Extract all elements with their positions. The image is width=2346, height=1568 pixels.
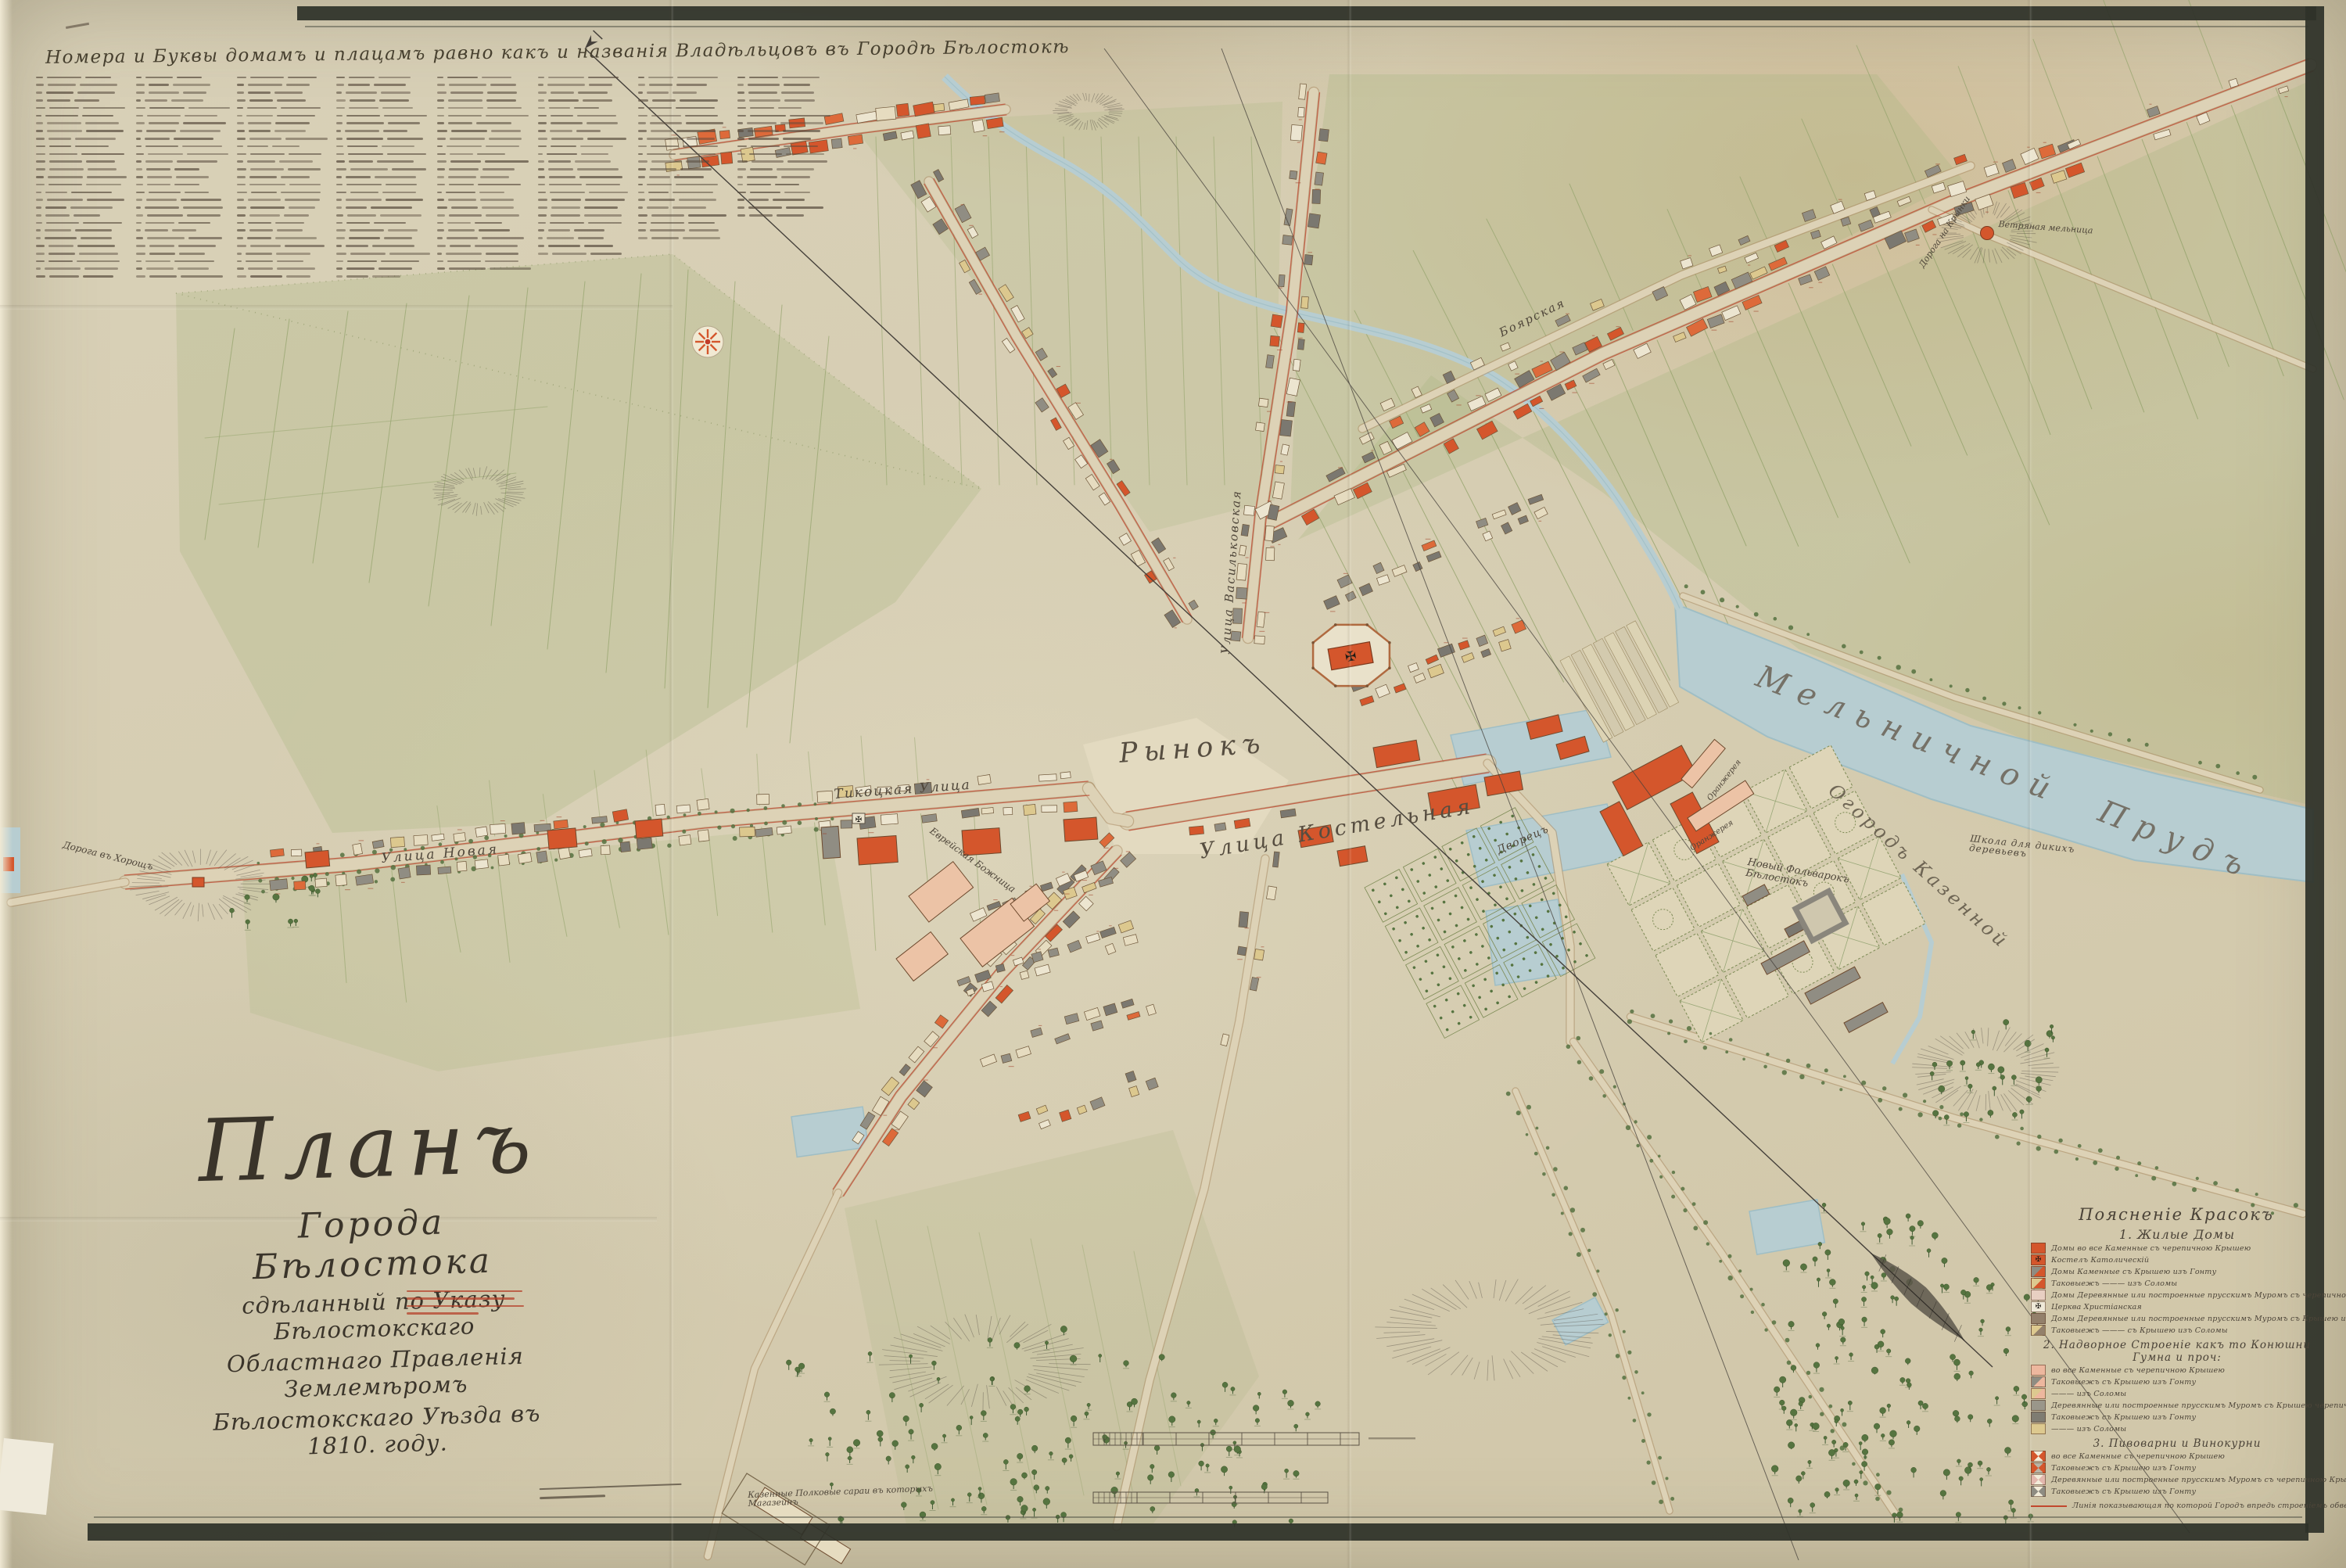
building-footprint (1189, 826, 1204, 835)
building-footprint (848, 135, 863, 145)
owner-row (437, 173, 531, 181)
building-footprint (655, 804, 665, 815)
owner-row (237, 242, 330, 250)
legend-item-label: Домы Деревянные или построенные прусским… (2051, 1291, 2346, 1300)
legend-swatch-icon (2031, 1266, 2046, 1277)
legend-swatch-icon (2031, 1290, 2046, 1301)
owner-row (136, 120, 230, 127)
owner-row (538, 227, 631, 235)
building-footprint (1508, 503, 1521, 515)
building-footprint (1060, 1110, 1071, 1121)
building-footprint (1064, 437, 1074, 449)
building-footprint (961, 808, 979, 818)
building-footprint (1086, 933, 1100, 943)
owner-row (136, 188, 230, 196)
building-footprint (857, 836, 898, 865)
owner-row (737, 104, 830, 112)
building-footprint (1799, 274, 1813, 285)
building-footprint (1281, 444, 1290, 455)
owner-row (136, 257, 230, 265)
fold-crease (0, 305, 673, 310)
building-footprint (1146, 1078, 1158, 1090)
legend-footer-label: Линія показывающая по которой Городъ впр… (2072, 1502, 2346, 1510)
building-footprint (1360, 696, 1374, 706)
owner-row (336, 150, 430, 158)
building-footprint (1499, 640, 1512, 651)
owner-row (538, 135, 631, 142)
owner-row (136, 181, 230, 188)
owner-row (237, 135, 330, 142)
building-footprint (1428, 664, 1444, 677)
building-footprint (921, 814, 937, 823)
owner-row (36, 135, 129, 142)
building-footprint (1118, 920, 1133, 933)
owner-row (136, 96, 230, 104)
owner-row (437, 112, 531, 120)
building-footprint (1221, 1034, 1229, 1046)
building-footprint (635, 819, 663, 838)
building-footprint (490, 823, 506, 834)
building-footprint (1099, 877, 1114, 887)
owner-row (437, 235, 531, 242)
building-footprint (558, 847, 570, 859)
building-footprint (1272, 852, 1279, 867)
owner-row (237, 188, 330, 196)
owner-row (336, 166, 430, 174)
building-footprint (985, 93, 999, 103)
building-footprint (1003, 807, 1013, 815)
building-footprint (1035, 964, 1050, 976)
title-line: Планъ (169, 1091, 570, 1202)
legend-item: Домы Каменные съ Крышею изъ Гонту (2031, 1266, 2322, 1277)
building-footprint (1301, 296, 1309, 308)
red-line-sample (2031, 1505, 2067, 1507)
owner-row (538, 127, 631, 135)
owner-row (737, 135, 830, 142)
building-footprint (390, 837, 404, 847)
legend-footer: Линія показывающая по которой Городъ впр… (2031, 1502, 2322, 1510)
owner-row (737, 127, 830, 135)
owner-row (336, 204, 430, 212)
building-footprint (1090, 1097, 1105, 1111)
building-footprint (1018, 1111, 1031, 1121)
owner-row (538, 96, 631, 104)
building-footprint (1064, 1014, 1079, 1024)
legend-section-heading: 1. Жилые Домы (2032, 1227, 2322, 1242)
building-footprint (1394, 684, 1406, 693)
building-footprint (518, 852, 532, 863)
owner-row (237, 211, 330, 219)
owner-row (737, 158, 830, 166)
owner-row (336, 81, 430, 89)
owner-row (538, 173, 631, 181)
building-footprint (1254, 949, 1264, 960)
owner-row (638, 235, 731, 242)
building-footprint (1105, 943, 1116, 954)
building-footprint (817, 791, 833, 802)
owner-row (437, 219, 531, 227)
legend-item: во все Каменные съ черепичною Крышею (2031, 1365, 2322, 1376)
owner-row (336, 211, 430, 219)
building-footprint (916, 124, 931, 138)
legend-item: Таковыежъ съ Крышею изъ Гонту (2031, 1412, 2322, 1423)
owner-row (36, 204, 129, 212)
owner-row (237, 257, 330, 265)
building-footprint (1318, 129, 1329, 142)
building-footprint (1844, 1003, 1888, 1033)
building-footprint (679, 835, 691, 845)
building-footprint (1280, 809, 1296, 818)
building-footprint (1297, 339, 1304, 350)
owner-row (737, 188, 830, 196)
owner-row (437, 81, 531, 89)
building-footprint (908, 1098, 920, 1110)
building-footprint (938, 126, 951, 135)
building-footprint (1408, 663, 1419, 673)
building-footprint (1001, 1053, 1012, 1063)
owner-row (437, 74, 531, 81)
owners-column (336, 74, 430, 283)
owner-row (437, 89, 531, 97)
owner-row (638, 142, 731, 150)
legend-item-label: во все Каменные съ черепичною Крышею (2051, 1452, 2225, 1461)
building-footprint (579, 849, 592, 857)
owner-row (737, 173, 830, 181)
legend-item-label: Деревянные или построенные прусскимъ Мур… (2051, 1401, 2346, 1410)
legend-swatch-icon (2031, 1423, 2046, 1434)
owner-row (136, 273, 230, 281)
building-footprint (1373, 562, 1384, 573)
building-footprint (1189, 600, 1198, 610)
building-footprint (1282, 235, 1293, 246)
owner-row (638, 196, 731, 204)
owner-row (336, 249, 430, 257)
building-footprint (416, 865, 430, 875)
owner-row (638, 188, 731, 196)
owner-row (237, 273, 330, 281)
owner-row (36, 227, 129, 235)
owner-row (336, 257, 430, 265)
owner-row (237, 196, 330, 204)
owner-row (336, 273, 430, 281)
owner-row (36, 173, 129, 181)
owner-row (437, 96, 531, 104)
owner-row (437, 181, 531, 188)
owner-row (437, 166, 531, 174)
building-footprint (1493, 626, 1505, 636)
owner-row (136, 104, 230, 112)
owner-row (237, 112, 330, 120)
owner-row (737, 142, 830, 150)
building-footprint (1039, 1120, 1051, 1129)
owner-row (36, 273, 129, 281)
building-footprint (1031, 1028, 1042, 1037)
building-footprint (1513, 404, 1532, 419)
legend-item-label: Таковыежъ съ Крышею изъ Гонту (2051, 1487, 2196, 1496)
building-footprint (981, 808, 994, 814)
owner-row (36, 219, 129, 227)
building-footprint (1257, 612, 1265, 627)
building-footprint (777, 826, 791, 834)
owner-row (437, 158, 531, 166)
owner-row (336, 74, 430, 81)
owner-row (437, 196, 531, 204)
owner-row (336, 158, 430, 166)
owner-row (36, 196, 129, 204)
building-footprint (1121, 999, 1135, 1008)
legend-item-label: Таковыежъ ——— съ Крышею изъ Соломы (2051, 1326, 2228, 1335)
owner-row (336, 104, 430, 112)
owner-row (36, 112, 129, 120)
building-footprint (1237, 946, 1247, 956)
owner-row (638, 127, 731, 135)
owner-row (638, 89, 731, 97)
building-footprint (1031, 952, 1043, 963)
owner-row (237, 235, 330, 242)
building-footprint (637, 838, 652, 849)
building-footprint (1299, 84, 1307, 99)
owner-row (136, 150, 230, 158)
building-footprint (1373, 740, 1420, 767)
owner-row (237, 120, 330, 127)
building-footprint (1492, 510, 1506, 519)
building-footprint (1458, 640, 1470, 650)
legend-item-label: Домы Деревянные или построенные прусским… (2051, 1315, 2346, 1323)
owner-row (136, 89, 230, 97)
legend-item: Таковыежъ ——— съ Крышею изъ Соломы (2031, 1325, 2322, 1336)
building-footprint (1298, 107, 1304, 117)
building-footprint (1312, 189, 1321, 203)
owner-row (437, 104, 531, 112)
building-footprint (1016, 1046, 1031, 1058)
building-footprint (1127, 1012, 1140, 1021)
legend-item-label: Таковыежъ съ Крышею изъ Гонту (2051, 1413, 2196, 1422)
map-sheet: ✠✠ Номера и Буквы домамъ и плацамъ равно… (0, 0, 2346, 1568)
building-footprint (294, 881, 306, 890)
legend-item-label: Таковыежъ съ Крышею изъ Гонту (2051, 1378, 2196, 1387)
owner-row (36, 257, 129, 265)
building-footprint (1103, 1003, 1117, 1016)
owner-row (136, 74, 230, 81)
owner-row (437, 242, 531, 250)
building-footprint (1501, 522, 1512, 534)
building-footprint (1905, 229, 1920, 242)
building-footprint (1337, 846, 1368, 867)
owner-row (36, 142, 129, 150)
owner-row (36, 188, 129, 196)
legend-item-label: Домы во все Каменные съ черепичною Крыше… (2051, 1244, 2251, 1253)
building-footprint (536, 851, 547, 863)
owner-row (136, 249, 230, 257)
building-footprint (1376, 684, 1390, 698)
owner-row (237, 204, 330, 212)
owner-row (237, 265, 330, 273)
building-footprint (1426, 551, 1441, 562)
owner-row (737, 112, 830, 120)
legend-item-label: ——— изъ Соломы (2051, 1390, 2126, 1398)
legend-swatch-icon (2031, 1451, 2046, 1462)
building-footprint (1239, 912, 1249, 928)
building-footprint (601, 845, 610, 855)
building-footprint (1414, 673, 1426, 684)
owner-row (437, 127, 531, 135)
building-footprint (475, 827, 488, 837)
legend-swatch-icon (2031, 1412, 2046, 1423)
legend-swatch-icon (2031, 1278, 2046, 1289)
title-line: Бѣлостокскаго Уѣзда въ 1810. году. (178, 1399, 578, 1463)
owner-row (336, 265, 430, 273)
building-footprint (1258, 398, 1268, 407)
owner-row (336, 112, 430, 120)
building-footprint (1275, 465, 1284, 474)
building-footprint (372, 840, 384, 849)
owner-row (737, 96, 830, 104)
owner-row (336, 235, 430, 242)
owner-row (638, 227, 731, 235)
owner-row (36, 235, 129, 242)
owner-row (336, 89, 430, 97)
building-footprint (896, 103, 909, 117)
owner-row (136, 135, 230, 142)
legend-swatch-icon (2031, 1486, 2046, 1497)
owner-row (237, 181, 330, 188)
building-footprint (270, 879, 288, 891)
owner-row (538, 196, 631, 204)
legend-swatch-icon (2031, 1243, 2046, 1254)
building-footprint (1064, 817, 1098, 841)
owner-row (538, 211, 631, 219)
building-footprint (972, 120, 985, 132)
owner-row (237, 81, 330, 89)
building-footprint (676, 805, 691, 813)
building-footprint (612, 809, 628, 822)
owner-row (638, 120, 731, 127)
owner-row (336, 173, 430, 181)
building-footprint (1984, 164, 1999, 178)
owner-row (237, 173, 330, 181)
owner-row (237, 127, 330, 135)
building-footprint (1051, 418, 1062, 430)
owner-row (737, 89, 830, 97)
legend-item: ——— изъ Соломы (2031, 1388, 2322, 1399)
building-footprint (1079, 896, 1094, 911)
owner-row (136, 242, 230, 250)
legend-item: Домы Деревянные или построенные прусским… (2031, 1313, 2322, 1324)
building-footprint (1286, 401, 1295, 417)
building-footprint (980, 1054, 996, 1067)
owner-row (237, 227, 330, 235)
building-footprint (1250, 978, 1259, 992)
building-footprint (454, 833, 466, 842)
owner-row (638, 166, 731, 174)
legend-item-label: Костелъ Католическій (2051, 1256, 2149, 1265)
building-footprint (1055, 1034, 1071, 1044)
owner-row (538, 158, 631, 166)
building-footprint (554, 820, 569, 829)
owner-row (538, 188, 631, 196)
owner-row (737, 181, 830, 188)
legend-item: Деревянные или построенные прусскимъ Мур… (2031, 1474, 2322, 1485)
owner-row (336, 196, 430, 204)
building-footprint (934, 1015, 948, 1028)
legend-item-label: во все Каменные съ черепичною Крышею (2051, 1366, 2225, 1375)
building-footprint (1271, 314, 1282, 328)
building-footprint (1518, 515, 1528, 524)
building-footprint (1146, 1004, 1157, 1015)
christian-chapel: ✠ (852, 813, 865, 824)
building-footprint (934, 103, 945, 111)
building-footprint (1125, 1071, 1136, 1082)
owner-row (336, 127, 430, 135)
building-footprint (1290, 170, 1297, 179)
owner-row (237, 158, 330, 166)
legend-swatch-icon (2031, 1400, 2046, 1411)
owner-row (36, 89, 129, 97)
building-footprint (335, 874, 347, 886)
owner-row (36, 104, 129, 112)
owner-row (237, 166, 330, 174)
owners-column (36, 74, 129, 283)
building-footprint (1091, 1021, 1103, 1031)
legend-item-label: ——— изъ Соломы (2051, 1425, 2126, 1433)
owner-row (136, 211, 230, 219)
building-footprint (1279, 274, 1285, 287)
owner-row (737, 196, 830, 204)
owner-row (136, 235, 230, 242)
building-footprint (1067, 940, 1082, 953)
owners-column (737, 74, 830, 283)
building-footprint (1707, 314, 1724, 328)
building-footprint (1265, 526, 1275, 540)
title-line: Областнаго Правленія Землемѣромъ (176, 1341, 576, 1405)
owner-row (237, 104, 330, 112)
owners-column (237, 74, 330, 283)
legend-item-label: Деревянные или построенные прусскимъ Мур… (2051, 1476, 2346, 1484)
building-footprint (291, 849, 301, 856)
compass-star (692, 326, 723, 357)
owner-row (638, 81, 731, 89)
building-footprint (1266, 886, 1276, 900)
building-footprint (305, 850, 330, 868)
building-footprint (1038, 774, 1056, 781)
building-footprint (1304, 254, 1313, 264)
building-footprint (2002, 160, 2016, 173)
building-footprint (1270, 335, 1280, 346)
owner-row (336, 120, 430, 127)
building-footprint (1290, 124, 1302, 141)
owner-row (136, 127, 230, 135)
owner-row (237, 249, 330, 257)
owner-row (136, 227, 230, 235)
building-footprint (2051, 170, 2067, 184)
owner-row (237, 219, 330, 227)
owner-row (437, 211, 531, 219)
owner-row (237, 96, 330, 104)
legend-swatch-icon (2031, 1474, 2046, 1485)
building-footprint (831, 138, 842, 149)
owners-table (36, 74, 830, 283)
building-footprint (1077, 1105, 1087, 1114)
building-footprint (1565, 380, 1577, 390)
building-footprint (1040, 882, 1053, 892)
building-footprint (909, 862, 974, 922)
owner-row (136, 112, 230, 120)
building-footprint (353, 843, 363, 855)
legend-item: во все Каменные съ черепичною Крышею (2031, 1451, 2322, 1462)
owner-row (638, 181, 731, 188)
building-footprint (1129, 1086, 1139, 1097)
owners-column (538, 74, 631, 283)
